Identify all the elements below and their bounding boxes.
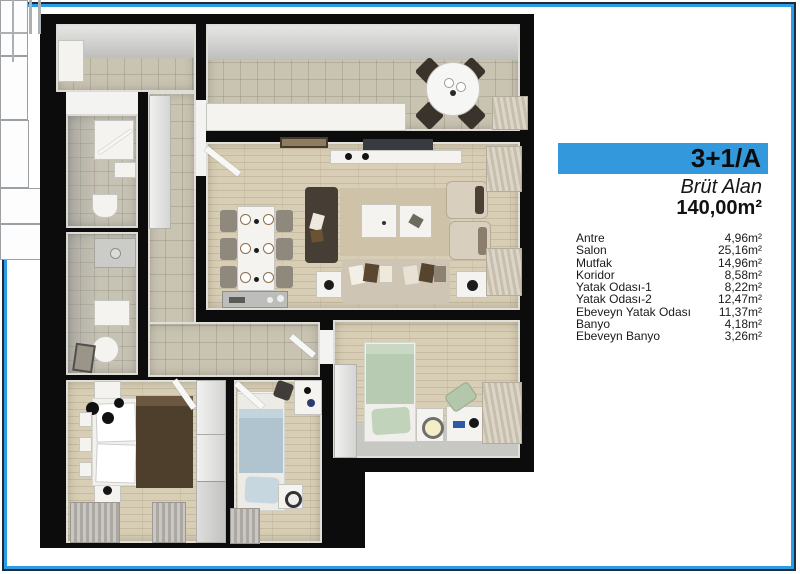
armchair [449, 221, 491, 260]
brown-blanket [136, 396, 193, 488]
dining-chair-gray [276, 210, 293, 232]
bedroom2-curtain [482, 382, 522, 444]
room-area-row: Yatak Odası-212,47m² [576, 293, 762, 305]
room-area-row: Salon25,16m² [576, 244, 762, 256]
kitchen-counter [206, 103, 406, 131]
salon-curtain-top [486, 146, 522, 192]
table-deco [450, 90, 456, 96]
room-name: Yatak Odası-2 [576, 293, 652, 305]
dining-chair-gray [220, 210, 237, 232]
wall-panel [79, 437, 92, 452]
wall-panel [79, 462, 92, 477]
speaker [362, 153, 369, 160]
bedroom1-curtain [230, 508, 260, 544]
green-pillow [371, 407, 411, 436]
master-curtain-left [70, 502, 120, 543]
kitchen-curtain [492, 96, 528, 130]
toilet-round [92, 336, 119, 363]
room-area: 3,26m² [725, 330, 762, 342]
coffee-table [361, 204, 397, 238]
bedroom2-window [0, 120, 29, 188]
room-area-row: Ebeveyn Banyo3,26m² [576, 330, 762, 342]
low-cabinet [222, 291, 288, 308]
door-opening-antre-bath [66, 92, 138, 114]
pendant-lamp [102, 412, 114, 424]
room-koridor-horizontal [148, 322, 320, 377]
salon-curtain-bottom [486, 248, 522, 296]
room-area: 12,47m² [718, 293, 762, 305]
round-table [426, 62, 480, 116]
kitchen-wall-face [208, 26, 518, 60]
green-blanket [366, 344, 414, 404]
sofa-pillow [310, 229, 324, 243]
gross-area-label: Brüt Alan [558, 176, 762, 199]
dining-chair-gray [276, 266, 293, 288]
dining-chair-gray [276, 238, 293, 260]
shower-drain [110, 248, 121, 259]
unit-label: 3+1/A [691, 143, 761, 173]
table-cup [456, 82, 466, 92]
bed-pillow-zone [92, 398, 138, 486]
pendant-lamp [114, 398, 124, 408]
bath-sink [114, 162, 136, 178]
dining-chair-gray [220, 238, 237, 260]
gross-area-value: 140,00m² [558, 197, 762, 220]
toilet [92, 194, 118, 218]
blue-pillow [244, 476, 279, 504]
unit-banner: 3+1/A [558, 143, 768, 174]
wall-panel [79, 412, 92, 427]
door-opening-corridor-kitchen [196, 100, 206, 176]
room-area-list: Antre4,96m² Salon25,16m² Mutfak14,96m² K… [576, 232, 762, 343]
hall-cabinet [149, 95, 171, 229]
bath-cabinet [94, 300, 130, 326]
salon-window [0, 56, 28, 120]
speaker [345, 153, 352, 160]
dining-chair-gray [220, 266, 237, 288]
master-curtain-right [152, 502, 186, 543]
room-area: 25,16m² [718, 244, 762, 256]
side-table [456, 271, 488, 298]
bedroom1-nightstand [278, 484, 303, 509]
bedroom1-desk [294, 380, 322, 415]
room-name: Ebeveyn Banyo [576, 330, 660, 342]
door-opening-bedroom2 [320, 330, 333, 364]
kitchen-window [0, 0, 28, 56]
armchair [446, 181, 488, 219]
bedroom2-wardrobe [334, 364, 357, 458]
antre-closet [58, 40, 84, 82]
blue-blanket [239, 409, 283, 473]
bath-mat [72, 343, 96, 374]
coffee-table [399, 205, 432, 238]
wall-picture [280, 137, 328, 148]
master-wardrobe [196, 380, 226, 543]
dining-table [237, 206, 275, 291]
bedroom2-nightstand [416, 408, 444, 442]
room-name: Salon [576, 244, 607, 256]
sofa-bottom [342, 259, 450, 304]
side-table [316, 271, 342, 298]
table-cup [444, 78, 454, 88]
